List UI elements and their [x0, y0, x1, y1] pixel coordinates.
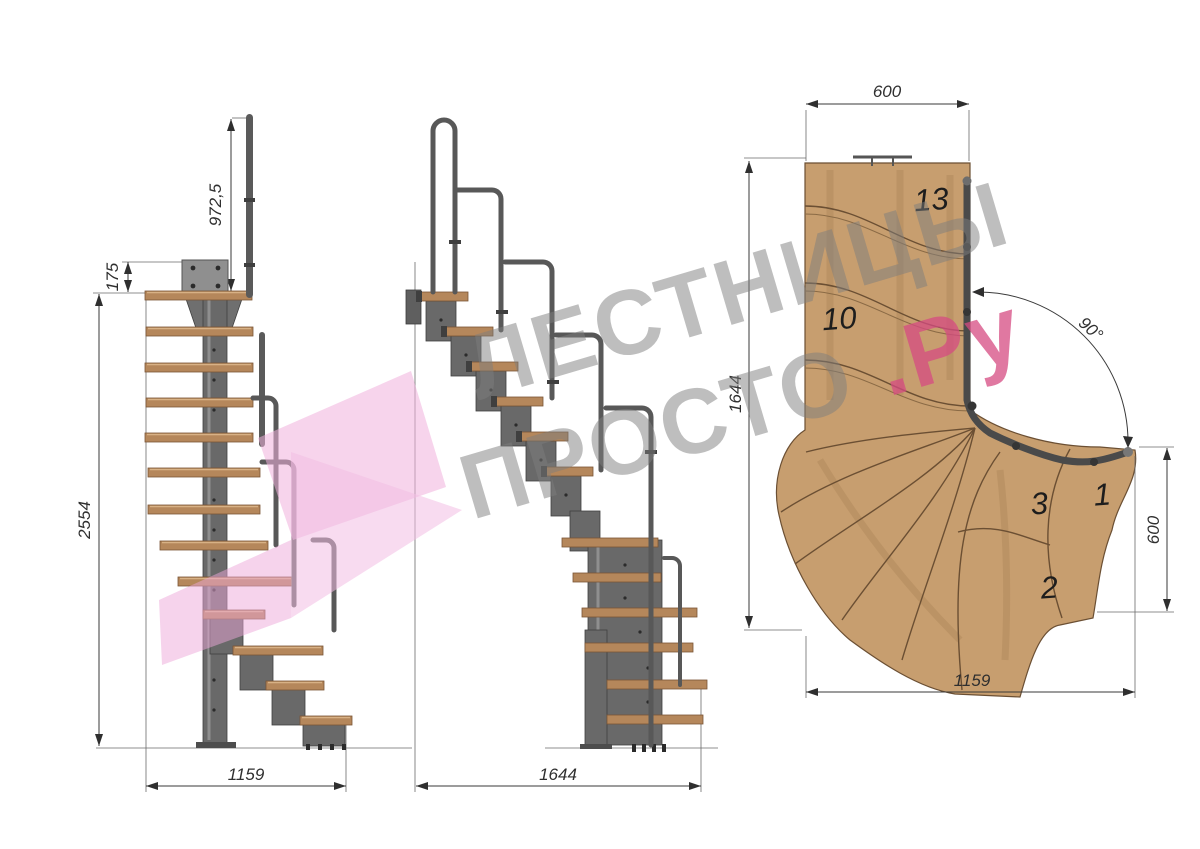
stacked-flight	[562, 538, 707, 752]
dim-plan-width: 1159	[954, 671, 991, 690]
stair-technical-drawing: 972,5 175 2554 1159	[0, 0, 1200, 849]
mounting-plate	[182, 260, 228, 293]
dim-landing-width: 600	[873, 82, 902, 101]
dim-front-length: 1644	[539, 765, 577, 784]
step-label-1: 1	[1092, 476, 1112, 512]
step-label-2: 2	[1038, 569, 1059, 605]
dim-exit-width: 600	[1144, 515, 1163, 544]
step-label-3: 3	[1029, 485, 1049, 521]
stair-drawing-page: 972,5 175 2554 1159	[0, 0, 1200, 849]
dim-total-height: 2554	[75, 501, 94, 540]
dim-handrail-height: 972,5	[206, 183, 225, 226]
dim-top-offset: 175	[103, 262, 122, 291]
dim-turn-angle: 90°	[1075, 313, 1107, 344]
dim-side-width: 1159	[228, 765, 265, 784]
